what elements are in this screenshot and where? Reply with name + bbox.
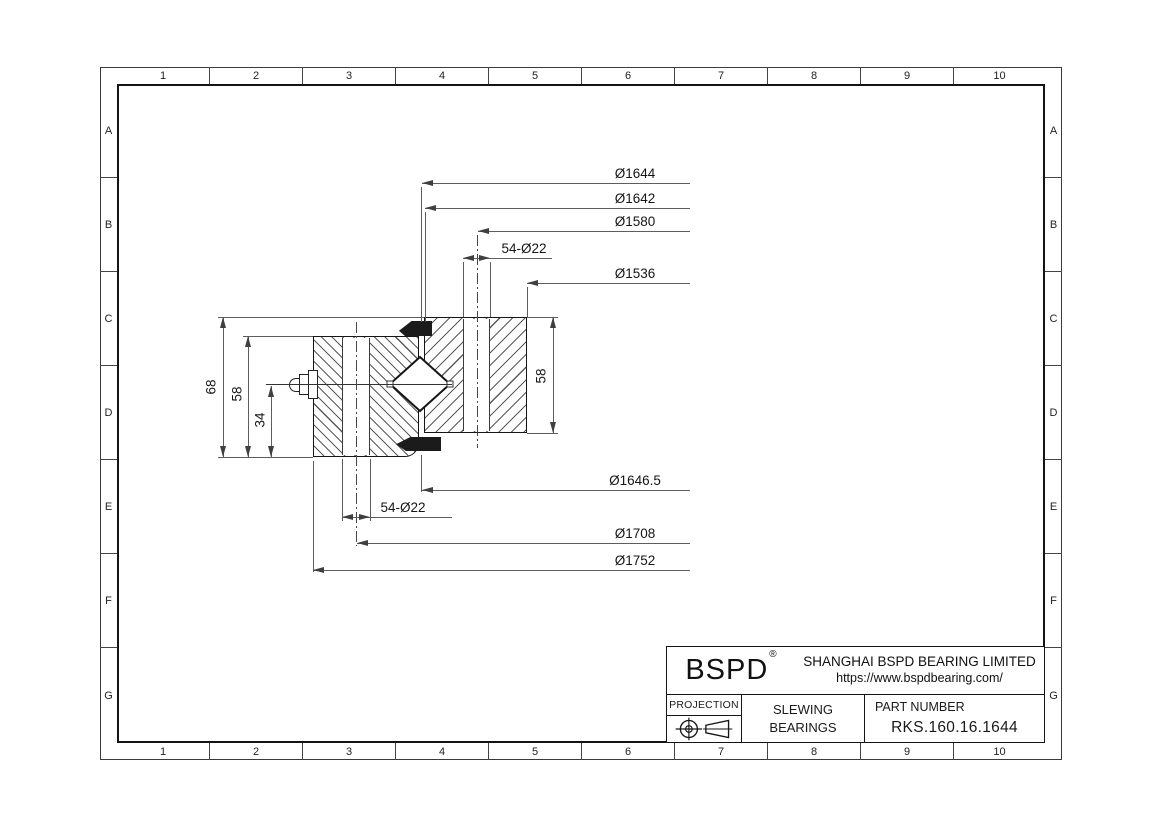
- grid-col-label: 2: [210, 743, 303, 760]
- dim-label-seal-1646-5: Ø1646.5: [595, 473, 675, 488]
- ext-line: [527, 287, 528, 317]
- grid-col-label: 9: [861, 743, 954, 760]
- company-name: SHANGHAI BSPD BEARING LIMITED: [795, 654, 1044, 671]
- dim-line: [422, 490, 690, 491]
- dim-line: [223, 317, 224, 457]
- dim-arrow: [422, 487, 433, 493]
- ext-line: [490, 262, 491, 317]
- product-line2: BEARINGS: [769, 719, 836, 737]
- grid-row-label: A: [100, 84, 117, 178]
- dim-label-bore-1536: Ø1536: [600, 266, 670, 281]
- grid-col-label: 5: [489, 67, 582, 84]
- dim-line: [248, 336, 249, 457]
- dim-arrow: [245, 336, 251, 347]
- roller-axis-centerline: [266, 384, 452, 385]
- dim-label-bolt-circle-1580: Ø1580: [600, 214, 670, 229]
- company-website: https://www.bspdbearing.com/: [795, 671, 1044, 687]
- grid-col-label: 5: [489, 743, 582, 760]
- ext-line: [218, 317, 424, 318]
- grid-row-label: F: [1045, 554, 1062, 648]
- dim-label-outer-ring-height-58: 58: [230, 386, 245, 401]
- grid-col-label: 6: [582, 67, 675, 84]
- grid-col-label: 4: [396, 67, 489, 84]
- dim-label-od-1642: Ø1642: [600, 191, 670, 206]
- dim-line: [527, 283, 690, 284]
- grid-col-label: 9: [861, 67, 954, 84]
- projection-label: PROJECTION: [667, 695, 741, 716]
- projection-cell: PROJECTION: [667, 695, 742, 742]
- part-number-value: RKS.160.16.1644: [865, 714, 1044, 737]
- grid-col-label: 6: [582, 743, 675, 760]
- dim-arrow: [268, 446, 274, 457]
- grid-row-label: D: [100, 366, 117, 460]
- dim-arrow: [425, 205, 436, 211]
- grid-col-label: 2: [210, 67, 303, 84]
- drawing-sheet: 1 2 3 4 5 6 7 8 9 10 1 2 3 4 5 6 7 8 9 1…: [0, 0, 1170, 827]
- dim-label-inner-ring-height-58: 58: [534, 368, 549, 383]
- dim-line: [422, 183, 690, 184]
- dim-arrow: [342, 514, 353, 520]
- grid-row-label: D: [1045, 366, 1062, 460]
- grid-col-label: 3: [303, 743, 396, 760]
- dim-arrow: [313, 567, 324, 573]
- grid-col-label: 7: [675, 67, 768, 84]
- dim-arrow: [357, 540, 368, 546]
- ext-line: [218, 457, 313, 458]
- grid-col-label: 3: [303, 67, 396, 84]
- grid-row-label: A: [1045, 84, 1062, 178]
- grid-col-label: 4: [396, 743, 489, 760]
- ext-line: [463, 262, 464, 317]
- dim-arrow: [550, 317, 556, 328]
- dim-line: [478, 231, 690, 232]
- product-type-cell: SLEWING BEARINGS: [742, 695, 865, 742]
- logo-text: BSPD: [685, 654, 768, 686]
- product-line1: SLEWING: [773, 701, 833, 719]
- dim-line: [463, 258, 552, 259]
- dim-arrow: [245, 446, 251, 457]
- first-angle-projection-icon: [670, 716, 738, 742]
- grid-row-label: E: [100, 460, 117, 554]
- dim-arrow: [550, 422, 556, 433]
- company-logo: BSPD®: [667, 656, 795, 685]
- dim-label-bolt-holes-bottom: 54-Ø22: [369, 500, 437, 515]
- grid-col-label: 10: [954, 67, 1045, 84]
- ext-line: [425, 212, 426, 322]
- outer-bolt-hole-centerline: [356, 322, 357, 546]
- part-number-label: PART NUMBER: [865, 695, 1044, 714]
- dim-arrow: [220, 317, 226, 328]
- grid-row-label: C: [100, 272, 117, 366]
- dim-label-bolt-circle-1708: Ø1708: [600, 526, 670, 541]
- title-block: BSPD® SHANGHAI BSPD BEARING LIMITED http…: [666, 646, 1045, 743]
- inner-bolt-hole-centerline: [477, 235, 478, 448]
- grid-row-label: G: [1045, 648, 1062, 743]
- grid-col-label: 1: [117, 67, 210, 84]
- dim-arrow: [422, 180, 433, 186]
- dim-label-bolt-holes-top: 54-Ø22: [490, 241, 558, 256]
- dim-arrow: [268, 386, 274, 397]
- dim-label-total-height-68: 68: [204, 379, 219, 394]
- grid-row-label: C: [1045, 272, 1062, 366]
- dim-line: [357, 543, 690, 544]
- dim-line: [553, 317, 554, 433]
- dim-arrow: [527, 280, 538, 286]
- dim-line: [313, 570, 690, 571]
- registered-mark: ®: [769, 649, 777, 660]
- ext-line: [421, 187, 422, 322]
- dim-arrow: [479, 255, 490, 261]
- grid-row-label: E: [1045, 460, 1062, 554]
- grid-col-label: 8: [768, 743, 861, 760]
- grid-col-label: 10: [954, 743, 1045, 760]
- ext-line: [342, 459, 343, 521]
- grid-row-label: F: [100, 554, 117, 648]
- dim-label-grease-height-34: 34: [253, 412, 268, 427]
- dim-line: [425, 208, 690, 209]
- dim-arrow: [463, 255, 474, 261]
- dim-label-od-1752: Ø1752: [600, 553, 670, 568]
- ext-line: [313, 461, 314, 572]
- grid-row-label: B: [1045, 178, 1062, 272]
- dim-arrow: [478, 228, 489, 234]
- part-number-cell: PART NUMBER RKS.160.16.1644: [865, 695, 1044, 742]
- dim-arrow: [220, 446, 226, 457]
- ext-line: [243, 336, 313, 337]
- title-block-header: BSPD® SHANGHAI BSPD BEARING LIMITED http…: [667, 647, 1044, 695]
- dim-label-od-1644: Ø1644: [600, 166, 670, 181]
- ext-line: [527, 433, 558, 434]
- grid-col-label: 8: [768, 67, 861, 84]
- grease-nipple-dome: [289, 378, 300, 392]
- grid-col-label: 7: [675, 743, 768, 760]
- grid-col-label: 1: [117, 743, 210, 760]
- grid-row-label: G: [100, 648, 117, 743]
- grid-row-label: B: [100, 178, 117, 272]
